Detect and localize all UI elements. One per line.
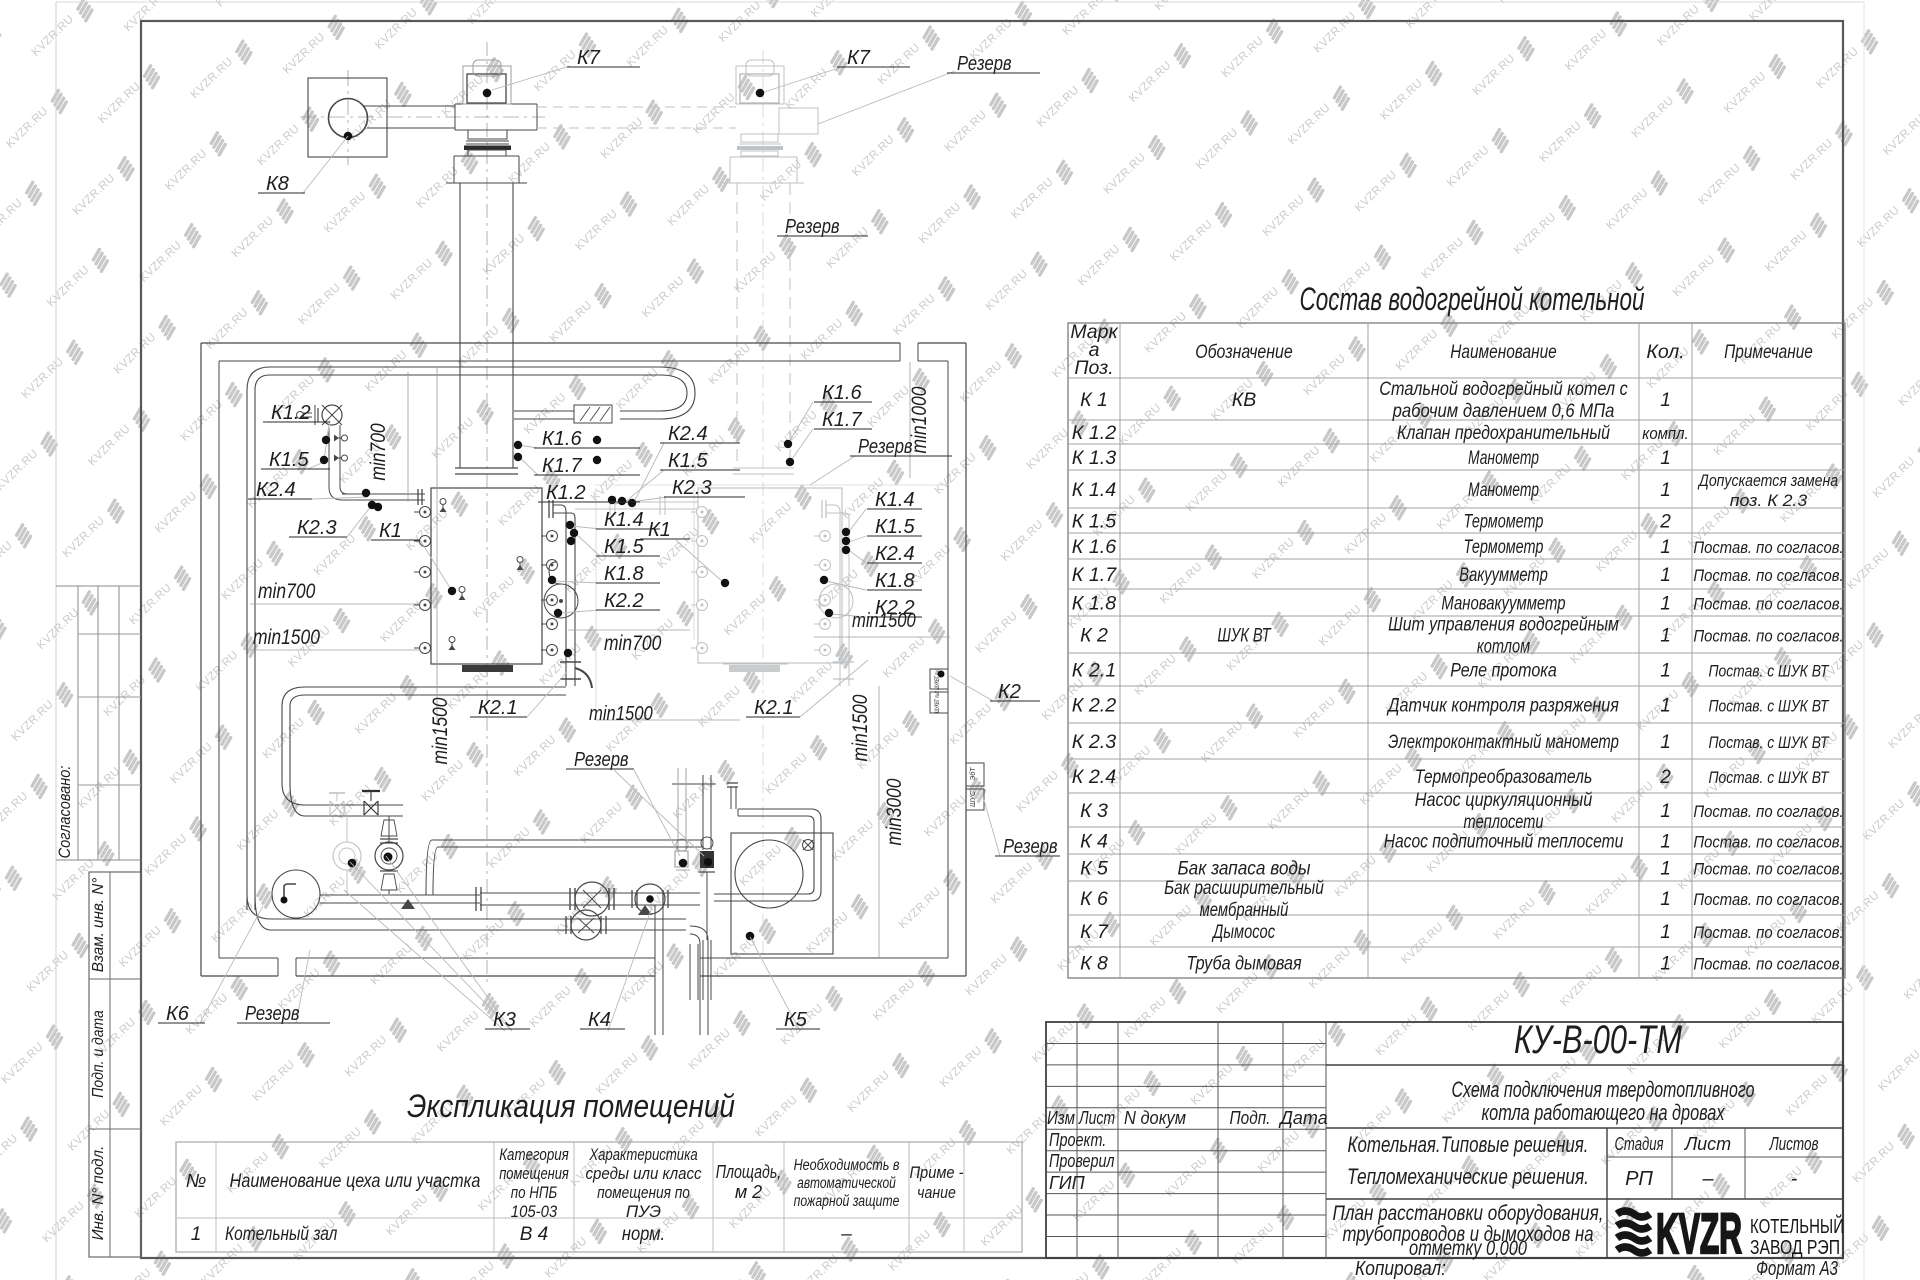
svg-text:К 2.2: К 2.2 (1072, 695, 1117, 717)
svg-text:К1.5: К1.5 (668, 450, 708, 472)
svg-text:Постав. по согласов.: Постав. по согласов. (1693, 628, 1843, 646)
svg-text:Бак расширительный: Бак расширительный (1164, 877, 1324, 899)
svg-text:К8: К8 (266, 173, 289, 195)
svg-text:Постав. с ШУК ВТ: Постав. с ШУК ВТ (1708, 698, 1830, 716)
svg-text:Допускается замена: Допускается замена (1697, 471, 1838, 490)
svg-text:К3: К3 (493, 1009, 516, 1031)
svg-text:Постав. с ШУК ВТ: Постав. с ШУК ВТ (1708, 663, 1830, 681)
svg-text:Постав. с ШУК ВТ: Постав. с ШУК ВТ (1708, 734, 1830, 752)
svg-text:КВ: КВ (1232, 389, 1257, 411)
svg-text:Датчик контроля разряжения: Датчик контроля разряжения (1386, 695, 1619, 717)
svg-text:Насос циркуляционный: Насос циркуляционный (1415, 789, 1593, 811)
svg-text:Копировал:: Копировал: (1355, 1258, 1446, 1280)
svg-text:Дата: Дата (1278, 1108, 1328, 1128)
svg-text:Постав. по согласов.: Постав. по согласов. (1693, 539, 1843, 557)
svg-text:–: – (1701, 1168, 1714, 1190)
svg-text:норм.: норм. (622, 1224, 665, 1245)
svg-text:К1.2: К1.2 (271, 402, 311, 424)
svg-text:1: 1 (1660, 594, 1671, 615)
svg-text:К7: К7 (577, 47, 601, 69)
svg-text:Взам. инв. N°: Взам. инв. N° (90, 877, 107, 972)
svg-text:К1: К1 (379, 520, 402, 542)
svg-text:компл.: компл. (1642, 424, 1688, 443)
svg-text:К2.1: К2.1 (754, 697, 794, 719)
svg-text:Манометр: Манометр (1468, 479, 1539, 501)
svg-text:КОТЕЛЬНЫЙ: КОТЕЛЬНЫЙ (1750, 1214, 1844, 1238)
svg-text:Электроконтактный манометр: Электроконтактный манометр (1388, 731, 1619, 753)
svg-text:План расстановки оборудования,: План расстановки оборудования, (1333, 1202, 1604, 1225)
svg-text:Резерв: Резерв (245, 1003, 300, 1025)
svg-text:Клапан предохранительный: Клапан предохранительный (1397, 422, 1610, 444)
svg-text:К1.5: К1.5 (269, 449, 309, 471)
svg-text:min3000: min3000 (883, 778, 906, 845)
svg-text:Необходимость в: Необходимость в (794, 1157, 900, 1174)
svg-text:К2.1: К2.1 (478, 697, 518, 719)
svg-text:К2.4: К2.4 (875, 543, 915, 565)
svg-text:1: 1 (1660, 537, 1671, 558)
svg-text:КУ-В-00-ТМ: КУ-В-00-ТМ (1514, 1018, 1683, 1062)
svg-text:№: № (186, 1171, 207, 1192)
svg-text:Термометр: Термометр (1464, 511, 1544, 533)
svg-text:Манометр: Манометр (1468, 447, 1539, 469)
svg-text:ШУКВТ №2: ШУКВТ №2 (934, 691, 941, 713)
svg-text:Постав. по согласов.: Постав. по согласов. (1693, 596, 1843, 614)
svg-text:Постав. по согласов.: Постав. по согласов. (1693, 861, 1843, 879)
svg-text:К1.2: К1.2 (546, 482, 586, 504)
svg-text:Котельный зал: Котельный зал (225, 1224, 338, 1245)
svg-text:Согласовано:: Согласовано: (55, 765, 74, 858)
svg-text:Резерв: Резерв (858, 436, 913, 458)
svg-text:помещения по: помещения по (597, 1183, 690, 1202)
svg-text:1: 1 (1660, 922, 1671, 943)
svg-text:Резерв: Резерв (574, 749, 629, 771)
svg-text:KVZR: KVZR (1656, 1202, 1742, 1266)
svg-text:Наименование: Наименование (1450, 341, 1557, 363)
svg-text:min1500: min1500 (849, 694, 872, 761)
svg-text:среды или класс: среды или класс (586, 1164, 702, 1183)
svg-text:К 7: К 7 (1080, 921, 1109, 943)
svg-text:К 8: К 8 (1080, 953, 1108, 975)
svg-text:Обозначение: Обозначение (1195, 341, 1293, 363)
svg-text:min1500: min1500 (429, 697, 452, 764)
svg-text:рабочим давлением 0,6 МПа: рабочим давлением 0,6 МПа (1392, 400, 1615, 422)
svg-text:автоматической: автоматической (797, 1175, 896, 1192)
svg-text:1: 1 (191, 1224, 202, 1245)
svg-text:К 1: К 1 (1080, 389, 1108, 411)
svg-text:Труба дымовая: Труба дымовая (1186, 953, 1302, 975)
svg-text:ШУК ВТ: ШУК ВТ (1217, 625, 1272, 647)
svg-text:Проверил: Проверил (1049, 1151, 1115, 1171)
svg-text:по НПБ: по НПБ (511, 1183, 557, 1202)
svg-text:Дымосос: Дымосос (1211, 921, 1275, 943)
svg-text:Площадь,: Площадь, (716, 1162, 782, 1182)
svg-text:К1.6: К1.6 (822, 382, 862, 404)
svg-text:К 1.7: К 1.7 (1072, 564, 1118, 586)
svg-text:Стальной водогрейный котел с: Стальной водогрейный котел с (1379, 378, 1628, 400)
svg-text:К6: К6 (166, 1003, 190, 1025)
svg-text:Котельная.Типовые решения.: Котельная.Типовые решения. (1348, 1132, 1589, 1157)
svg-text:1: 1 (1660, 832, 1671, 853)
svg-text:Поз.: Поз. (1074, 357, 1113, 379)
svg-text:Состав водогрейной котельной: Состав водогрейной котельной (1300, 281, 1645, 317)
svg-text:К1.8: К1.8 (875, 570, 915, 592)
svg-text:1: 1 (1660, 954, 1671, 975)
svg-text:К 2: К 2 (1080, 625, 1108, 647)
svg-text:К1.8: К1.8 (604, 563, 644, 585)
svg-text:Листов: Листов (1769, 1134, 1819, 1154)
svg-text:Изм: Изм (1047, 1108, 1075, 1128)
svg-text:РП: РП (1625, 1168, 1653, 1190)
svg-text:К1.6: К1.6 (542, 428, 582, 450)
svg-text:В 4: В 4 (520, 1224, 549, 1245)
svg-text:помещения: помещения (499, 1164, 569, 1183)
svg-text:Лист: Лист (1078, 1108, 1115, 1128)
svg-text:К 3: К 3 (1080, 800, 1108, 822)
svg-text:Постав. по согласов.: Постав. по согласов. (1693, 891, 1843, 909)
svg-text:Тепломеханические решения.: Тепломеханические решения. (1347, 1164, 1589, 1189)
svg-text:Насос подпиточный теплосети: Насос подпиточный теплосети (1384, 831, 1624, 853)
svg-text:К2.3: К2.3 (672, 477, 712, 499)
svg-text:К1.7: К1.7 (822, 409, 862, 431)
svg-text:м 2: м 2 (735, 1182, 762, 1202)
svg-text:К1: К1 (648, 519, 671, 541)
svg-text:-: - (1791, 1168, 1798, 1190)
svg-text:К 5: К 5 (1080, 858, 1108, 880)
svg-text:min700: min700 (604, 632, 662, 655)
svg-text:–: – (840, 1224, 852, 1245)
svg-text:Примечание: Примечание (1724, 341, 1813, 363)
svg-text:Резерв: Резерв (957, 53, 1012, 75)
svg-text:ГИП: ГИП (1049, 1173, 1086, 1193)
svg-text:Постав. с ШУК ВТ: Постав. с ШУК ВТ (1708, 769, 1830, 787)
svg-text:Лист: Лист (1684, 1134, 1731, 1154)
svg-text:1: 1 (1660, 859, 1671, 880)
svg-text:Постав. по согласов.: Постав. по согласов. (1693, 567, 1843, 585)
svg-text:1: 1 (1660, 565, 1671, 586)
svg-text:К 1.5: К 1.5 (1072, 511, 1117, 533)
svg-text:1: 1 (1660, 480, 1671, 501)
svg-text:Подп. и дата: Подп. и дата (90, 1010, 107, 1097)
svg-text:Кол.: Кол. (1646, 341, 1684, 363)
svg-text:Категория: Категория (499, 1145, 569, 1164)
svg-text:К 1.2: К 1.2 (1072, 422, 1117, 444)
svg-text:мембранный: мембранный (1200, 899, 1289, 921)
svg-text:105-03: 105-03 (511, 1202, 558, 1221)
svg-text:Резерв: Резерв (1003, 836, 1058, 858)
svg-text:ПУЭ: ПУЭ (626, 1202, 661, 1221)
svg-text:min1000: min1000 (908, 386, 931, 453)
svg-text:1: 1 (1660, 448, 1671, 469)
svg-text:котла работающего на дровах: котла работающего на дровах (1482, 1100, 1726, 1125)
svg-text:ЗАВОД РЭП: ЗАВОД РЭП (1750, 1237, 1840, 1259)
svg-text:К2.3: К2.3 (297, 517, 337, 539)
svg-text:К4: К4 (588, 1009, 611, 1031)
svg-text:К2.4: К2.4 (668, 423, 708, 445)
svg-text:Реле протока: Реле протока (1450, 660, 1557, 682)
svg-text:Схема подключения твердотоплив: Схема подключения твердотопливного (1452, 1077, 1755, 1102)
svg-text:К2.2: К2.2 (604, 590, 644, 612)
svg-text:Подп.: Подп. (1230, 1108, 1271, 1128)
svg-text:К 1.8: К 1.8 (1072, 593, 1117, 615)
svg-text:N докум: N докум (1124, 1108, 1186, 1128)
svg-text:1: 1 (1660, 801, 1671, 822)
svg-text:ШУС: ШУС (970, 790, 977, 807)
svg-text:К1.5: К1.5 (875, 516, 915, 538)
svg-text:Постав. по согласов.: Постав. по согласов. (1693, 956, 1843, 974)
svg-text:1: 1 (1660, 696, 1671, 717)
svg-text:К 4: К 4 (1080, 831, 1108, 853)
svg-text:К1.7: К1.7 (542, 455, 582, 477)
svg-text:Приме -: Приме - (909, 1163, 963, 1182)
svg-text:К5: К5 (784, 1009, 808, 1031)
svg-text:Инв. N° подл.: Инв. N° подл. (90, 1146, 107, 1241)
svg-text:Постав. по согласов.: Постав. по согласов. (1693, 834, 1843, 852)
svg-text:К 2.4: К 2.4 (1072, 766, 1117, 788)
svg-text:Постав. по согласов.: Постав. по согласов. (1693, 803, 1843, 821)
svg-text:поз. К 2.3: поз. К 2.3 (1730, 491, 1808, 510)
svg-text:Проект.: Проект. (1049, 1130, 1106, 1150)
svg-text:К 2.1: К 2.1 (1072, 660, 1116, 682)
svg-text:Характеристика: Характеристика (589, 1145, 698, 1164)
svg-text:Стадия: Стадия (1614, 1134, 1663, 1154)
svg-text:К2.4: К2.4 (256, 479, 296, 501)
svg-text:Термопреобразователь: Термопреобразователь (1415, 766, 1593, 788)
svg-text:К 6: К 6 (1080, 888, 1108, 910)
svg-text:К 1.4: К 1.4 (1072, 479, 1117, 501)
svg-text:отметку 0,000: отметку 0,000 (1409, 1237, 1527, 1260)
svg-text:пожарной защите: пожарной защите (794, 1193, 900, 1210)
svg-text:Наименование цеха или участка: Наименование цеха или участка (230, 1171, 481, 1192)
svg-text:2: 2 (1659, 512, 1671, 533)
svg-text:К 1.6: К 1.6 (1072, 536, 1117, 558)
svg-text:1: 1 (1660, 626, 1671, 647)
svg-text:Постав. по согласов.: Постав. по согласов. (1693, 924, 1843, 942)
svg-text:ЭбТ: ЭбТ (969, 767, 977, 781)
svg-text:Термометр: Термометр (1464, 536, 1544, 558)
svg-text:1: 1 (1660, 889, 1671, 910)
svg-text:чание: чание (917, 1183, 956, 1202)
svg-text:1: 1 (1660, 732, 1671, 753)
svg-text:min700: min700 (367, 423, 390, 481)
svg-text:min1500: min1500 (253, 626, 320, 649)
svg-text:min1500: min1500 (852, 610, 916, 632)
svg-text:min700: min700 (258, 580, 316, 603)
svg-text:К1.4: К1.4 (875, 489, 915, 511)
svg-text:Формат А3: Формат А3 (1756, 1258, 1838, 1280)
svg-text:К7: К7 (847, 47, 871, 69)
svg-text:К1.4: К1.4 (604, 509, 644, 531)
svg-text:1: 1 (1660, 390, 1671, 411)
svg-text:К 1.3: К 1.3 (1072, 447, 1117, 469)
svg-text:К 2.3: К 2.3 (1072, 731, 1117, 753)
svg-text:2: 2 (1659, 767, 1671, 788)
svg-text:Резерв: Резерв (785, 216, 840, 238)
svg-text:Вакуумметр: Вакуумметр (1459, 564, 1548, 586)
svg-text:Шит управления водогрейным: Шит управления водогрейным (1388, 614, 1619, 636)
svg-text:min1500: min1500 (589, 703, 653, 725)
svg-text:котлом: котлом (1477, 636, 1530, 658)
svg-text:К1.5: К1.5 (604, 536, 644, 558)
svg-text:Экспликация помещений: Экспликация помещений (407, 1088, 735, 1124)
svg-text:Мановакуумметр: Мановакуумметр (1441, 593, 1565, 615)
svg-text:К2: К2 (998, 681, 1021, 703)
svg-text:1: 1 (1660, 661, 1671, 682)
